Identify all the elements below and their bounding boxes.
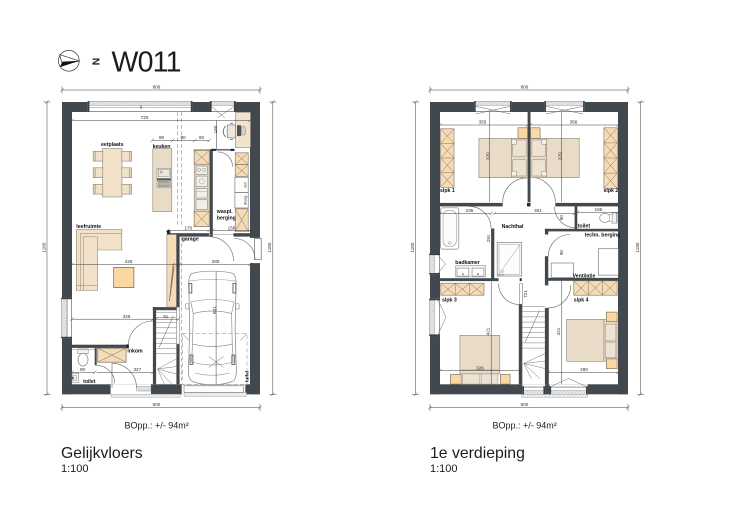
svg-text:150: 150 xyxy=(213,125,218,133)
svg-text:356: 356 xyxy=(570,120,578,125)
svg-text:inkom: inkom xyxy=(127,349,143,355)
svg-text:wm: wm xyxy=(243,182,247,188)
svg-text:800: 800 xyxy=(521,85,529,90)
svg-text:355: 355 xyxy=(479,120,487,125)
svg-text:158: 158 xyxy=(228,225,236,230)
svg-text:1180: 1180 xyxy=(41,242,46,252)
svg-text:370: 370 xyxy=(486,152,491,160)
svg-text:1:100: 1:100 xyxy=(430,463,458,475)
svg-text:280: 280 xyxy=(212,259,220,264)
svg-text:1180: 1180 xyxy=(410,242,415,252)
svg-text:berging: berging xyxy=(217,216,236,222)
svg-text:eetplaats: eetplaats xyxy=(101,142,124,148)
svg-text:luifel: luifel xyxy=(244,371,250,382)
svg-text:721: 721 xyxy=(523,290,528,298)
svg-text:91: 91 xyxy=(163,314,169,319)
svg-text:326: 326 xyxy=(123,314,131,319)
svg-text:327: 327 xyxy=(133,367,141,372)
svg-text:800: 800 xyxy=(521,402,529,407)
svg-text:keuken: keuken xyxy=(153,144,171,150)
svg-text:800: 800 xyxy=(153,402,161,407)
svg-text:slpk 4: slpk 4 xyxy=(574,298,589,304)
svg-text:techn. berging: techn. berging xyxy=(585,233,621,239)
svg-text:170: 170 xyxy=(184,225,192,230)
svg-text:1180: 1180 xyxy=(635,242,640,252)
svg-text:toilet: toilet xyxy=(578,224,591,230)
svg-text:90: 90 xyxy=(80,367,86,372)
svg-text:1e verdieping: 1e verdieping xyxy=(430,445,525,462)
svg-text:80: 80 xyxy=(159,135,165,140)
svg-text:370: 370 xyxy=(558,152,563,160)
svg-text:Gelijkvloers: Gelijkvloers xyxy=(61,445,143,462)
svg-text:301: 301 xyxy=(534,208,542,213)
svg-text:291: 291 xyxy=(486,234,491,242)
svg-text:badkamer: badkamer xyxy=(455,260,480,266)
svg-text:slpk 1: slpk 1 xyxy=(440,188,455,194)
svg-text:toilet: toilet xyxy=(83,379,96,385)
svg-text:Ventilatie: Ventilatie xyxy=(573,274,596,280)
svg-text:1180: 1180 xyxy=(267,242,272,252)
svg-text:BOpp.: +/- 94m²: BOpp.: +/- 94m² xyxy=(493,420,557,430)
svg-text:N: N xyxy=(90,58,102,66)
svg-text:60: 60 xyxy=(199,135,205,140)
svg-text:slpk 2: slpk 2 xyxy=(604,188,619,194)
svg-text:garage: garage xyxy=(182,237,199,243)
svg-text:421: 421 xyxy=(486,327,491,335)
svg-text:720: 720 xyxy=(141,115,149,120)
svg-text:601: 601 xyxy=(212,306,217,314)
svg-text:426: 426 xyxy=(125,259,133,264)
svg-text:W011: W011 xyxy=(112,46,181,78)
svg-text:421: 421 xyxy=(556,327,561,335)
svg-text:Nachthal: Nachthal xyxy=(502,224,524,230)
svg-text:165: 165 xyxy=(595,207,603,212)
svg-text:800: 800 xyxy=(153,85,161,90)
svg-text:280: 280 xyxy=(580,367,588,372)
svg-text:90: 90 xyxy=(180,135,186,140)
svg-text:326: 326 xyxy=(476,365,484,370)
svg-text:waspl.: waspl. xyxy=(216,209,233,215)
svg-text:236: 236 xyxy=(466,208,474,213)
svg-text:leefruimte: leefruimte xyxy=(76,224,101,230)
svg-text:slpk 3: slpk 3 xyxy=(442,298,457,304)
svg-text:90: 90 xyxy=(559,215,564,221)
svg-text:BOpp.: +/- 94m²: BOpp.: +/- 94m² xyxy=(125,420,189,430)
svg-text:90: 90 xyxy=(559,250,564,256)
svg-text:1:100: 1:100 xyxy=(61,463,89,475)
svg-text:droog: droog xyxy=(243,196,247,205)
